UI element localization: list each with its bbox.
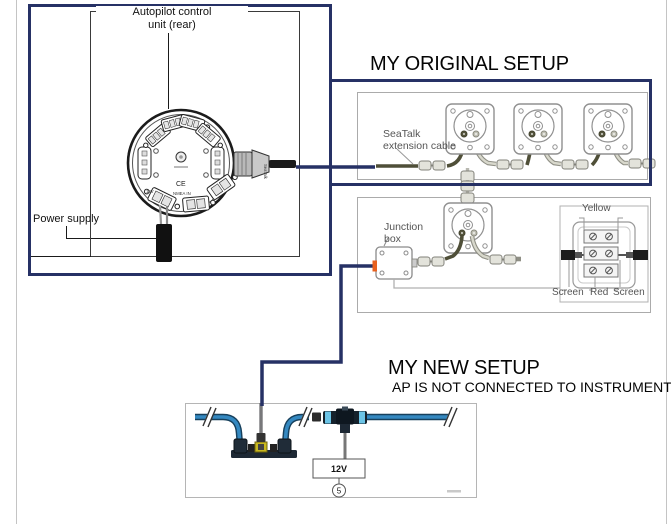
page-right-rule	[666, 0, 667, 524]
inset-label-screen-right: Screen	[613, 287, 645, 299]
callout-number: 5	[337, 487, 342, 496]
inset-label-yellow: Yellow	[582, 203, 611, 215]
power-box-label: 12V	[331, 464, 347, 474]
junction-box-label-line1: Junction	[384, 221, 423, 233]
autopilot-title: Autopilot control unit (rear)	[96, 6, 248, 32]
wiring-diagram-page: Autopilot control unit (rear) Power supp…	[0, 0, 671, 524]
cable-connector-pair	[418, 257, 444, 266]
autopilot-title-line1: Autopilot control	[96, 6, 248, 19]
autopilot-title-line2: unit (rear)	[96, 19, 248, 32]
inset-label-red: Red	[590, 287, 608, 299]
junction-box-label: Junction box	[384, 221, 423, 245]
cable-connector-pair	[490, 255, 516, 264]
new-setup-heading: MY NEW SETUP	[388, 357, 540, 380]
inset-label-screen-left: Screen	[552, 287, 584, 299]
junction-box	[376, 247, 417, 279]
page-left-rule	[16, 0, 17, 524]
original-setup-annotation-frame	[329, 79, 652, 186]
junction-box-label-line2: box	[384, 233, 423, 245]
instrument-rear-4	[444, 203, 492, 253]
original-setup-heading: MY ORIGINAL SETUP	[370, 53, 569, 76]
inset-link-line	[394, 279, 560, 288]
seatalk-extension-label-line2: extension cable	[383, 140, 456, 152]
backbone-connector	[312, 413, 321, 422]
part-number-smudge	[447, 490, 461, 493]
seatalk-extension-label-line1: SeaTalk	[383, 128, 456, 140]
original-lower-diagram	[357, 180, 653, 315]
autopilot-drop-connector	[257, 433, 266, 442]
autopilot-annotation-box	[28, 4, 332, 276]
seatalk-extension-label: SeaTalk extension cable	[383, 128, 456, 152]
new-setup-subheading: AP IS NOT CONNECTED TO INSTRUMENTS	[392, 379, 671, 395]
new-setup-diagram: 12V 5	[185, 403, 477, 498]
